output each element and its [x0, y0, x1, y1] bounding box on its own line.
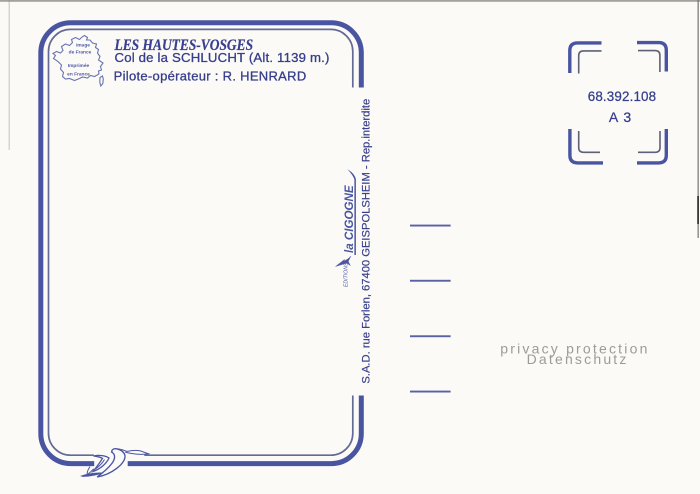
- svg-text:S.A.D. rue Forlen, 67400 GEISP: S.A.D. rue Forlen, 67400 GEISPOLSHEIM - …: [360, 99, 372, 384]
- svg-text:Datenschutz: Datenschutz: [527, 351, 629, 367]
- svg-text:en France: en France: [67, 71, 90, 77]
- svg-text:de France: de France: [69, 50, 92, 56]
- svg-text:Image: Image: [76, 42, 90, 48]
- svg-text:Col de la SCHLUCHT (Alt. 1139: Col de la SCHLUCHT (Alt. 1139 m.): [115, 50, 330, 65]
- svg-text:Imprimée: Imprimée: [68, 63, 90, 69]
- svg-text:A 3: A 3: [609, 109, 632, 125]
- svg-text:68.392.108: 68.392.108: [588, 89, 657, 104]
- svg-text:la CIGOGNE: la CIGOGNE: [343, 184, 356, 253]
- svg-text:Pilote-opérateur : R. HENRARD: Pilote-opérateur : R. HENRARD: [114, 69, 307, 84]
- svg-text:EDITIONS: EDITIONS: [344, 262, 350, 287]
